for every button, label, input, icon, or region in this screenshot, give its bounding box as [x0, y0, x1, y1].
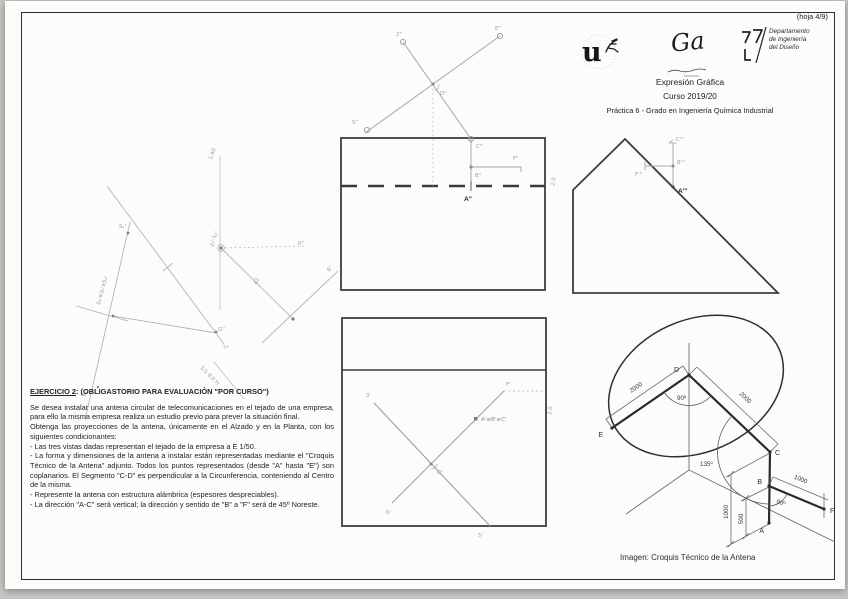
- perfil-view: C''' B''' F''' A''': [573, 137, 778, 293]
- point-label: E": [495, 26, 501, 32]
- antenna-circle: [586, 289, 806, 484]
- angle-label: 90º: [677, 395, 687, 402]
- dim-label: 500: [738, 513, 745, 524]
- exercise-title-main: EJERCICIO 2: [30, 387, 76, 396]
- point-label: F': [506, 382, 511, 388]
- title-block: Expresión Gráfica Curso 2019/20 Práctica…: [552, 77, 828, 115]
- dept-logo-icon: [742, 27, 766, 63]
- signature-logo-icon: [668, 69, 706, 76]
- exercise-bullet: - La forma y dimensiones de la antena a …: [30, 451, 334, 490]
- exercise-statement: EJERCICIO 2: (OBLIGASTORIO PARA EVALUACI…: [30, 387, 334, 509]
- point-label: C: [775, 450, 780, 457]
- point-label-a3: A''': [678, 188, 688, 195]
- point-label: B: [757, 479, 762, 486]
- point-label: 2": [396, 32, 402, 38]
- subject-title: Expresión Gráfica: [552, 77, 828, 87]
- pencil-mark: S₂': [119, 224, 126, 230]
- pencil-mark: G'': [218, 327, 225, 333]
- pencil-mark: 2₄'·1₄': [209, 231, 220, 248]
- point-label: E: [598, 432, 603, 439]
- pencil-mark: 1/1 8,0 H: [199, 365, 220, 386]
- pencil-mark: 1,40: [208, 147, 218, 161]
- pencil-mark: 0'': [298, 241, 304, 247]
- university-logo-glyph: u: [582, 37, 602, 68]
- point-label: 5": [352, 120, 358, 126]
- dim-label: 2000: [628, 381, 644, 395]
- pencil-mark: 8'': [326, 265, 335, 274]
- planta-outline: [342, 318, 546, 526]
- pencil-mark: 0₄'≡3₄'≡5₄': [96, 275, 109, 305]
- practice-title: Práctica 6 - Grado en Ingeniería Química…: [552, 106, 828, 115]
- pencil-construction: 1,40 S₂' 0₄'≡3₄'≡5₄' 6₄' 2₄'·1₄' 0'' 8''…: [76, 147, 338, 420]
- pencil-mark: 1₄: [222, 343, 230, 351]
- point-label: F: [830, 508, 834, 515]
- croquis-caption: Imagen: Croquis Técnico de la Antena: [620, 553, 840, 562]
- point-label: F''': [635, 172, 642, 178]
- sheet-number: (hoja 4/9): [742, 12, 828, 21]
- point-label-a2: A": [464, 196, 472, 203]
- dim-label: 1000: [723, 505, 730, 519]
- exercise-bullet: - La dirección "A-C" será vertical; la d…: [30, 500, 334, 510]
- exercise-bullet: - Las tres vistas dadas representan el t…: [30, 442, 334, 452]
- exercise-paragraph: Se desea instalar una antena circular de…: [30, 403, 334, 422]
- point-label: C''': [676, 137, 684, 143]
- planta-view: 3' F' A'≡B'≡C' D' 6' 5' 2,0: [342, 318, 555, 539]
- perfil-outline: [573, 139, 778, 293]
- pencil-note: 2,0: [550, 176, 558, 186]
- point-label: D': [437, 470, 443, 476]
- department-name: Departamento de Ingeniería del Diseño: [769, 28, 839, 53]
- point-label: D: [674, 367, 679, 374]
- exercise-paragraph: Obtenga las proyecciones de la antena, ú…: [30, 422, 334, 441]
- exercise-title: EJERCICIO 2: (OBLIGASTORIO PARA EVALUACI…: [30, 387, 334, 397]
- dim-label: 2000: [738, 391, 753, 406]
- angle-label: 90º: [775, 498, 787, 508]
- croquis-sketch: D E C B A F 2000 2000 1000 1000 500 90º …: [586, 289, 835, 547]
- angle-label: 135º: [700, 461, 713, 468]
- point-label: 6': [386, 510, 391, 516]
- point-label: 3': [366, 393, 371, 399]
- point-label: B''': [677, 160, 685, 166]
- dept-line: del Diseño: [769, 44, 839, 52]
- exercise-bullet: - Represente la antena con estructura al…: [30, 490, 334, 500]
- course-year: Curso 2019/20: [552, 92, 828, 101]
- dept-line: Departamento: [769, 28, 839, 36]
- signature-logo-glyph: Ga: [670, 26, 706, 57]
- point-label: C": [476, 144, 482, 150]
- alzado-view: 2" E" 5" D" C" B" F" A" 2,0: [341, 26, 558, 290]
- point-label: F": [513, 156, 518, 162]
- point-label: 5': [478, 533, 483, 539]
- dim-label: 1000: [793, 474, 809, 486]
- point-label: B": [475, 173, 481, 179]
- pencil-note: 2,0: [547, 405, 554, 415]
- point-label-abc: A'≡B'≡C': [481, 417, 507, 423]
- point-label: A: [759, 528, 764, 535]
- point-label: D": [440, 91, 447, 97]
- dept-line: de Ingeniería: [769, 36, 839, 44]
- exercise-title-rest: : (OBLIGASTORIO PARA EVALUACIÓN "POR CUR…: [76, 387, 269, 396]
- pencil-mark: 42: [253, 277, 261, 285]
- scanned-sheet: 1,40 S₂' 0₄'≡3₄'≡5₄' 6₄' 2₄'·1₄' 0'' 8''…: [0, 0, 848, 599]
